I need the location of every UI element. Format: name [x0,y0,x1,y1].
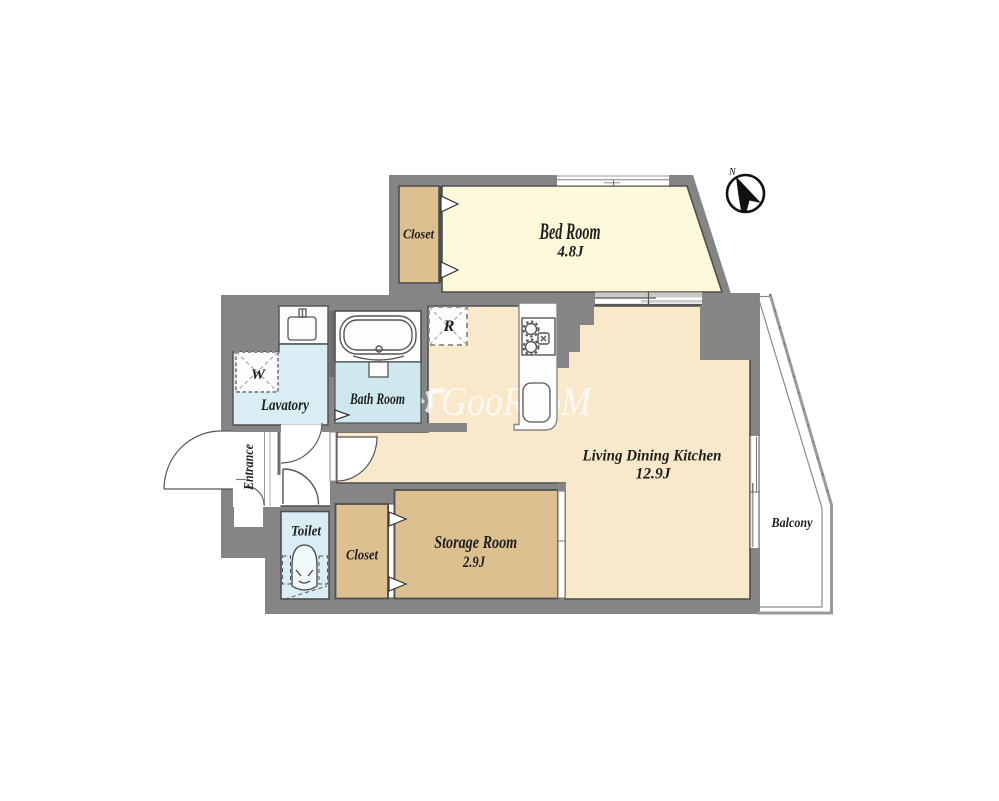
svg-text:W: W [251,367,267,383]
svg-text:Toilet: Toilet [291,523,322,539]
svg-text:12.9J: 12.9J [636,466,672,483]
svg-text:Bed Room: Bed Room [539,219,601,244]
svg-text:Bath Room: Bath Room [349,391,405,408]
svg-text:Closet: Closet [346,547,379,563]
svg-text:GooRooM: GooRooM [441,378,593,424]
svg-text:Living Dining Kitchen: Living Dining Kitchen [582,448,722,465]
svg-text:R: R [442,318,454,335]
svg-text:Closet: Closet [403,228,435,243]
svg-text:Storage Room: Storage Room [434,532,517,552]
svg-text:Balcony: Balcony [771,515,814,530]
svg-text:2.9J: 2.9J [462,554,486,571]
svg-text:N: N [728,167,737,178]
svg-text:Entrance: Entrance [241,444,256,491]
svg-text:Lavatory: Lavatory [260,397,310,414]
svg-text:4.8J: 4.8J [557,244,585,261]
